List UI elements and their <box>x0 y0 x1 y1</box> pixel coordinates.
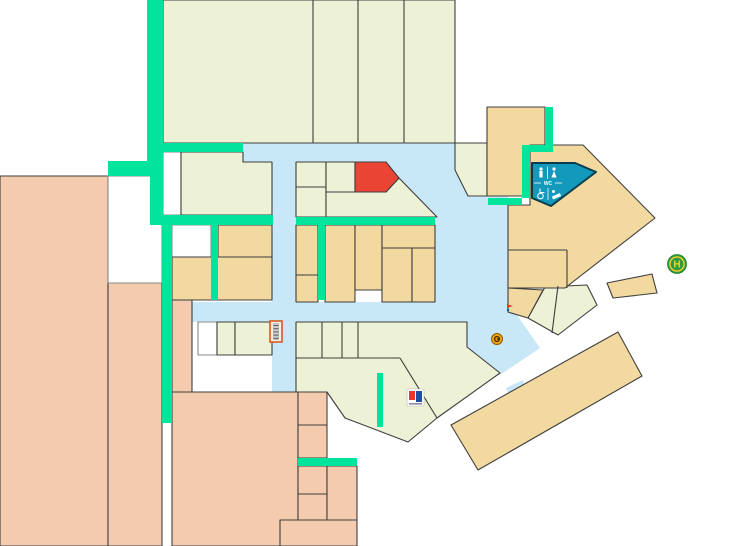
wc-label: WC <box>544 181 553 187</box>
female-icon <box>552 167 555 170</box>
salmon-room-3[interactable] <box>298 466 327 494</box>
stairs-icon[interactable] <box>270 321 282 342</box>
shop-e6[interactable] <box>382 248 412 302</box>
anchor-store-west-2[interactable] <box>108 283 162 546</box>
shop-d1[interactable] <box>218 225 272 257</box>
shop-d2[interactable] <box>172 257 272 300</box>
shop-east-sliver[interactable] <box>607 274 657 298</box>
bus-stop-icon[interactable]: H <box>668 255 687 274</box>
corridor-divider-west <box>211 225 218 300</box>
corridor-left-vertical <box>150 152 163 225</box>
salmon-room-5[interactable] <box>280 520 357 546</box>
shop-e7[interactable] <box>412 248 435 302</box>
shop-c2[interactable] <box>235 322 272 355</box>
corridor-wc-bar <box>488 198 522 205</box>
mall-map: WCH <box>0 0 750 546</box>
corridor-mid-bar-center <box>296 217 435 225</box>
vacant-room-2 <box>172 225 211 257</box>
salmon-room-6[interactable] <box>327 466 357 520</box>
shop-e2[interactable] <box>296 275 318 302</box>
corridor-angled-strip <box>377 373 383 427</box>
corridor-south-vertical <box>162 225 172 423</box>
corridor-bottom-bar <box>298 458 357 466</box>
vacant-room-3 <box>198 322 217 355</box>
store-logo-icon[interactable] <box>407 389 424 406</box>
shop-e5[interactable] <box>382 225 435 248</box>
walkway-upper <box>243 143 437 162</box>
corridor-east-jog <box>522 145 553 152</box>
vacant-room-1 <box>163 152 181 215</box>
map-canvas: WCH <box>0 0 750 546</box>
anchor-store-west[interactable] <box>0 176 108 546</box>
male-icon <box>539 171 542 178</box>
corridor-mid-bar-west <box>152 215 273 225</box>
shop-west-row[interactable] <box>181 152 272 215</box>
corridor-center-vertical <box>318 225 325 300</box>
shop-b3[interactable] <box>326 162 355 192</box>
shop-b1[interactable] <box>296 162 326 187</box>
info-point-icon[interactable] <box>492 334 503 345</box>
corridor-east-vertical-2 <box>522 152 530 198</box>
shop-c1[interactable] <box>217 322 235 355</box>
baby-change-icon <box>552 190 555 193</box>
walkway-vertical <box>272 160 296 392</box>
corridor-top-bar <box>147 143 243 152</box>
anchor-store-north[interactable] <box>163 0 455 143</box>
anchor-store-south[interactable] <box>172 392 298 546</box>
salmon-room-1[interactable] <box>298 392 327 425</box>
bus-stop-letter: H <box>673 259 680 270</box>
shop-e4[interactable] <box>355 225 382 290</box>
shop-e3[interactable] <box>325 225 355 302</box>
shop-e1[interactable] <box>296 225 318 275</box>
shop-b2[interactable] <box>296 187 326 217</box>
salmon-room-4[interactable] <box>298 494 327 520</box>
male-icon <box>539 167 542 170</box>
salmon-room-2[interactable] <box>298 425 327 458</box>
